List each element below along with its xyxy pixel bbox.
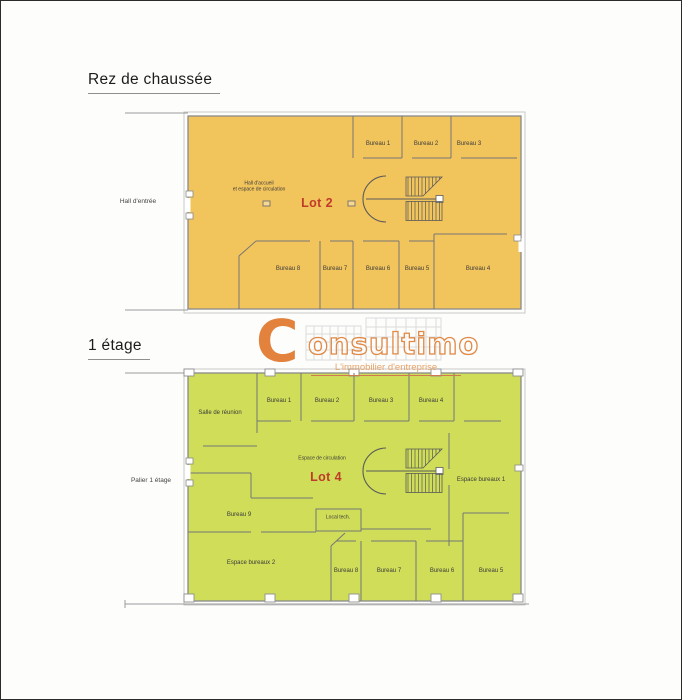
label-circulation: Espace de circulation xyxy=(298,457,346,462)
label-e1-bureau7: Bureau 7 xyxy=(377,568,401,574)
label-rdc-bureau2: Bureau 2 xyxy=(414,141,438,147)
label-lot-4: Lot 4 xyxy=(310,471,342,484)
label-rdc-bureau6: Bureau 6 xyxy=(366,266,390,272)
column-icon xyxy=(263,201,270,206)
ground-floor-walls xyxy=(111,106,536,321)
first-floor-plan: Palier 1 étage Salle de réunion Bureau 1… xyxy=(111,361,536,616)
door-icon xyxy=(186,191,193,197)
logo-initial: C xyxy=(256,312,299,370)
label-e1-bureau6: Bureau 6 xyxy=(430,568,454,574)
door-icon xyxy=(514,235,521,241)
logo-name: onsultimo xyxy=(308,330,479,359)
label-e1-bureau9: Bureau 9 xyxy=(227,512,251,518)
floorplan-document: Rez de chaussée xyxy=(0,0,682,700)
label-e1-bureau5: Bureau 5 xyxy=(479,568,503,574)
label-e1-bureau3: Bureau 3 xyxy=(369,398,393,404)
label-rdc-bureau5: Bureau 5 xyxy=(405,266,429,272)
label-e1-bureau4: Bureau 4 xyxy=(419,398,443,404)
ground-floor-plan: Hall d'entrée Hall d'accueil et espace d… xyxy=(111,106,536,321)
label-salle-reunion: Salle de réunion xyxy=(198,410,241,416)
door-icon xyxy=(186,213,193,219)
column-icon xyxy=(348,201,355,206)
label-e1-bureau2: Bureau 2 xyxy=(315,398,339,404)
door-icon xyxy=(186,480,193,486)
label-rdc-bureau8: Bureau 8 xyxy=(276,266,300,272)
label-espace-bureaux2: Espace bureaux 2 xyxy=(227,560,275,566)
label-rdc-bureau7: Bureau 7 xyxy=(323,266,347,272)
label-rdc-bureau1: Bureau 1 xyxy=(366,141,390,147)
entrance-door-gap xyxy=(186,198,191,212)
label-palier: Palier 1 étage xyxy=(131,478,171,485)
door-icon xyxy=(515,465,523,471)
label-rdc-bureau3: Bureau 3 xyxy=(457,141,481,147)
label-e1-bureau8: Bureau 8 xyxy=(334,568,358,574)
label-rdc-bureau4: Bureau 4 xyxy=(466,266,490,272)
label-hall-entree: Hall d'entrée xyxy=(120,199,156,206)
label-e1-bureau1: Bureau 1 xyxy=(267,398,291,404)
label-lot-2: Lot 2 xyxy=(301,197,333,210)
hall-accueil-line2: et espace de circulation xyxy=(233,188,286,193)
label-local-tech: Local tech. xyxy=(326,516,350,521)
ground-floor-title: Rez de chaussée xyxy=(88,71,220,94)
logo-tagline: L'immobilier d'entreprise xyxy=(311,362,461,376)
label-espace-bureaux1: Espace bureaux 1 xyxy=(457,477,505,483)
door-icon xyxy=(186,458,193,464)
first-floor-title: 1 étage xyxy=(88,337,150,360)
consultimo-logo: C onsultimo L'immobilier d'entreprise xyxy=(256,316,461,378)
label-hall-accueil: Hall d'accueil et espace de circulation xyxy=(233,182,286,193)
